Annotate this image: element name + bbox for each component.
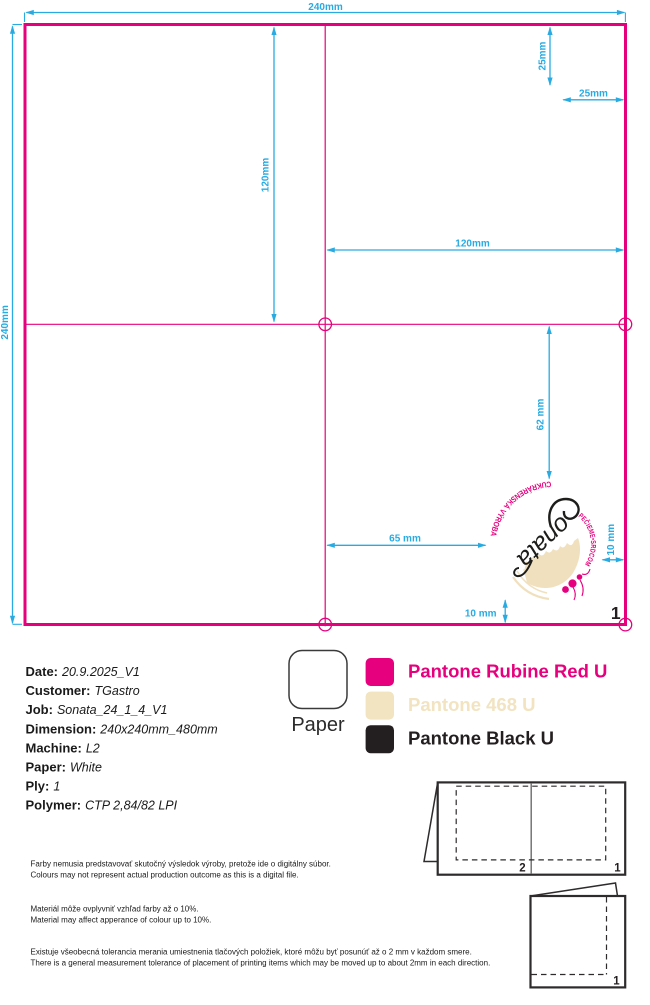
svg-text:Colours may not represent actu: Colours may not represent actual product… — [31, 871, 299, 880]
svg-text:Paper: Paper — [291, 714, 345, 736]
svg-text:Ply:1: Ply:1 — [26, 779, 61, 794]
svg-text:120mm: 120mm — [455, 239, 490, 250]
svg-text:Pantone 468 U: Pantone 468 U — [408, 694, 536, 715]
svg-text:1: 1 — [611, 603, 621, 623]
svg-text:240mm: 240mm — [0, 305, 11, 340]
svg-text:Existuje všeobecná tolerancia: Existuje všeobecná tolerancia merania um… — [31, 948, 472, 957]
svg-text:25mm: 25mm — [537, 41, 548, 70]
svg-text:65 mm: 65 mm — [389, 534, 421, 545]
svg-text:Machine:L2: Machine:L2 — [26, 740, 100, 755]
svg-text:Materiál môže ovplyvniť vzhľad: Materiál môže ovplyvniť vzhľad farby až … — [31, 904, 199, 913]
svg-text:Date:20.9.2025_V1: Date:20.9.2025_V1 — [26, 664, 140, 679]
svg-text:Dimension:240x240mm_480mm: Dimension:240x240mm_480mm — [26, 721, 218, 736]
svg-text:Paper:White: Paper:White — [26, 760, 102, 775]
svg-text:Pantone Rubine Red U: Pantone Rubine Red U — [408, 661, 607, 682]
svg-text:10 mm: 10 mm — [606, 524, 617, 556]
svg-text:1: 1 — [613, 976, 620, 988]
svg-text:Pantone Black U: Pantone Black U — [408, 728, 554, 749]
svg-text:25mm: 25mm — [579, 89, 608, 100]
svg-text:There is a general measurement: There is a general measurement tolerance… — [31, 959, 491, 968]
svg-text:Customer:TGastro: Customer:TGastro — [26, 683, 140, 698]
svg-text:PEČIEME•SRDCOM: PEČIEME•SRDCOM — [577, 511, 598, 568]
svg-text:Farby nemusia predstavovať sku: Farby nemusia predstavovať skutočný výsl… — [31, 860, 331, 869]
svg-text:Material may affect apperance: Material may affect apperance of colour … — [31, 916, 212, 925]
svg-text:Job:Sonata_24_1_4_V1: Job:Sonata_24_1_4_V1 — [26, 702, 168, 717]
svg-text:2: 2 — [519, 863, 525, 875]
svg-text:1: 1 — [614, 863, 621, 875]
svg-text:240mm: 240mm — [308, 2, 343, 13]
svg-text:120mm: 120mm — [261, 158, 272, 193]
svg-text:Polymer:CTP 2,84/82 LPI: Polymer:CTP 2,84/82 LPI — [26, 798, 178, 813]
svg-text:10 mm: 10 mm — [465, 609, 497, 620]
svg-text:62 mm: 62 mm — [536, 399, 547, 431]
